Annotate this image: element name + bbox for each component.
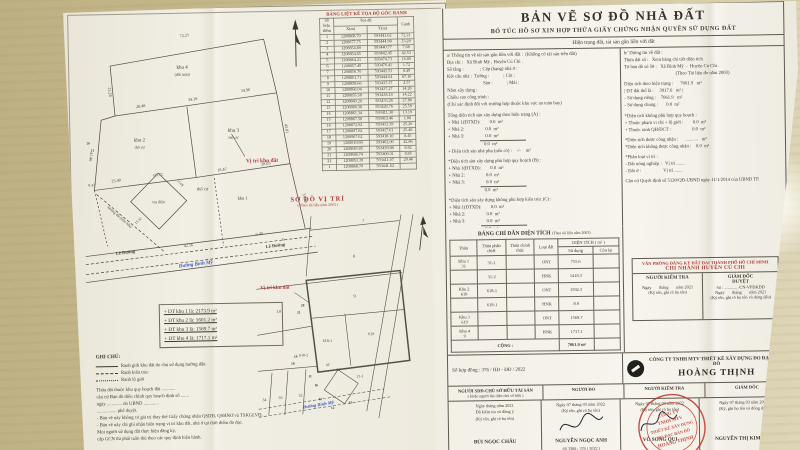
plot-label-khu4-sub: (đất màu) [174, 72, 190, 77]
dt-col-phanchiet: Thửa phân chiết [477, 239, 506, 255]
form-line: *Diện tích không được công nhận : 0.0 m² [625, 142, 782, 151]
form-line: + Thuộc ranh QH/ĐCT : 0.0 m² [625, 125, 782, 134]
detail-table-title-note: (Theo tài liệu năm 2003) [552, 231, 591, 236]
detail-table-block: BẢNG CHỈ DẪN DIỆN TÍCH (Theo tài liệu nă… [446, 226, 625, 354]
form-line: (Chỉ xác định đối với trường hợp thuộc k… [447, 100, 617, 109]
company-block: CÔNG TY TNHH MTV THIẾT KẾ XÂY DỰNG ĐO ĐẠ… [623, 351, 788, 383]
map-point-label: 15 [319, 397, 323, 401]
dim-label: 42.16 [183, 242, 193, 248]
dim-label: 72.21 [179, 32, 189, 38]
signature-header-surveyor: NGƯỜI ĐO [543, 384, 624, 399]
dim-label: 17.08 [176, 179, 185, 188]
map-location-label: Vị trí khu đất [260, 286, 290, 292]
dim-label: 8.47 [88, 183, 95, 187]
map-point-label: 18 [291, 362, 295, 366]
signature-cell-director: Ngày 07 tháng 03 năm 2022 (Ký, ghi họ tê… [700, 397, 790, 450]
registry-office-box: VĂN PHÒNG ĐĂNG KÝ ĐẤT ĐAI THÀNH PHỐ HỒ C… [632, 256, 780, 321]
point-label: 20 [87, 141, 91, 145]
coord-col-edge: Cạnh [398, 17, 414, 34]
registry-director-cell: GIÁM ĐỐC DUYỆT Số : ............ /CN-VPĐ… [703, 272, 778, 319]
form-line: - Sử dụng chung : 0.0 m² [624, 101, 781, 110]
company-row: Số hợp đồng : 376 / HĐ - ĐĐ / 2022 CÔNG … [448, 350, 788, 386]
signature-body-row: Ngày tháng năm 2021 Đã kiểm tra và đồng … [449, 396, 790, 450]
registry-checker-cell: NGƯỜI KIỂM TRA Ngày tháng năm 2021 (Ký t… [633, 273, 704, 320]
map-point-label: 20 [301, 303, 305, 307]
survey-form: BẢN VẼ SƠ ĐỒ NHÀ ĐẤT BỔ TÚC HỒ SƠ XIN HỢ… [442, 1, 790, 450]
tables-row: BẢNG CHỈ DẪN DIỆN TÍCH (Theo tài liệu nă… [446, 224, 788, 355]
sig-doc-number: Số TBĐ : 376 ( 2022 ) [542, 445, 620, 450]
plot-label-khu4: khu 4 [176, 66, 188, 71]
signature-squiggle [556, 412, 606, 437]
legend-line-sample [96, 366, 118, 367]
map-parcel-label: 6 [282, 237, 284, 242]
notes-block: GHI CHÚ: Ranh giới khu đất do chủ sử dụn… [96, 351, 286, 444]
north-arrow-icon [287, 18, 304, 70]
dim-label: 34.18 [188, 96, 198, 102]
signature-header-owner: NGƯỜI SDĐ-CHỦ SỞ HỮU TÀI SẢN ( Hoặc ngườ… [448, 385, 543, 400]
sig-note: (Ký, ghi họ tên và đóng dấu) [700, 405, 788, 413]
total-label: CỘNG : [451, 339, 559, 353]
right-sheet: BẢN VẼ SƠ ĐỒ NHÀ ĐẤT BỔ TÚC HỒ SƠ XIN HỢ… [426, 0, 800, 450]
dt-col-thua: Thửa [450, 240, 477, 256]
left-sheet: khu 4 (đất màu) khu 2 thổ cư khu 3 thổ c… [50, 0, 446, 450]
dim-label: 25.40 [111, 177, 121, 183]
dim-label: 34.90 [240, 87, 250, 93]
map-parcel-label: 32 [298, 392, 302, 397]
map-parcel-label: 7 [362, 218, 364, 223]
plot-label-khu3: khu 3 [228, 129, 240, 134]
form-line: + Nhà 3: 0.0 m² [448, 131, 618, 140]
sig-note: (Ký tên, ghi rõ họ tên) [449, 415, 541, 423]
dim-label: 18.47 [217, 166, 227, 172]
detail-table-title: BẢNG CHỈ DẪN DIỆN TÍCH (Theo tài liệu nă… [449, 229, 619, 237]
plot-label-khu2-sub: thổ cư [135, 144, 146, 149]
sig-name: BÙI NGỌC CHÂU [449, 438, 541, 447]
map-point-label: 13 [349, 400, 353, 404]
legend-line-sample [96, 380, 118, 381]
form-title-block: BẢN VẼ SƠ ĐỒ NHÀ ĐẤT BỔ TÚC HỒ SƠ XIN HỢ… [443, 2, 783, 40]
registry-checker-header: NGƯỜI KIỂM TRA [635, 275, 700, 281]
legend: Ranh giới khu đất do chủ sử dụng hướng d… [96, 360, 284, 385]
plot-label-khu3-sub: thổ cư [228, 135, 239, 140]
dt-col-chinhthuc: Thửa chính thức [506, 239, 535, 255]
legend-label: Ranh lộ giới [121, 376, 144, 383]
plot-label-duongdat: Đường đất (hiện hữu) [107, 205, 134, 229]
form-line: + Nhà 3: 0.0 m² [449, 217, 619, 226]
column-assets-info: a/ Thông tin về tài sản gắn liền với đất… [444, 48, 623, 228]
map-parcel-label: 9 [353, 293, 356, 298]
company-brand: HOÀNG THỊNH [649, 366, 784, 378]
form-line: - Đất ở : Vị trí ....... [625, 166, 782, 175]
registry-director-note: (Ký tên, ghi rõ họ tên và đóng dấu) [705, 294, 776, 300]
map-point-label: 14 [336, 368, 340, 372]
registry-cell: VĂN PHÒNG ĐĂNG KÝ ĐẤT ĐAI THÀNH PHỐ HỒ C… [623, 224, 788, 352]
info-columns: a/ Thông tin về tài sản gắn liền với đất… [444, 46, 786, 229]
plot-label-khu2: khu 2 [134, 138, 146, 143]
legend-line-sample [96, 373, 118, 374]
detail-table-title-text: BẢNG CHỈ DẪN DIỆN TÍCH [478, 230, 551, 237]
road-label-le-duong-1: Lề Đường [116, 249, 137, 256]
company-logo-icon [627, 360, 644, 377]
area-summary-line: + DT khu 4 là: 1717.1 m² [164, 333, 278, 344]
form-line: + Nhà 3: 0.0 m² [448, 177, 618, 186]
form-line: 0.0 m² [481, 186, 527, 195]
signature-header-director: GIÁM ĐỐC [705, 382, 788, 397]
photo-of-land-survey-documents: khu 4 (đất màu) khu 2 thổ cư khu 3 thổ c… [0, 0, 800, 450]
map-point-label: 21 [297, 310, 301, 314]
dim-label: 43.81 [284, 123, 291, 133]
map-north-arrow-icon [419, 216, 429, 250]
column-land-info: b/ Thông tin về đất : Thửa đất số : Xem … [621, 46, 786, 226]
dim-label: 15.32 [134, 216, 143, 225]
map-parcel-label: 619 [368, 331, 374, 336]
form-line: + Diện tích sàn nhà phụ (nếu có) : -/- m… [448, 146, 618, 155]
total-value: 7061.9 m² [559, 338, 594, 350]
map-parcel-label: 618-1 [323, 338, 332, 343]
dt-col-loaidat: Loại đất [534, 239, 558, 255]
sig-name: NGUYỄN THỊ KIM HUỆ [700, 435, 788, 444]
company-stamp: CÔNG TY TNHH MTV THIẾT KẾ XÂY DỰNG ĐO ĐẠ… [634, 390, 709, 450]
column-b-lines: Thửa đất số : Xem bảng chi tiết diện tíc… [624, 55, 783, 185]
right-sheet-content: BẢN VẼ SƠ ĐỒ NHÀ ĐẤT BỔ TÚC HỒ SƠ XIN HỢ… [428, 0, 796, 450]
plot-label-thocu: thổ cư [197, 186, 209, 191]
registry-checker-note: (Ký tên, ghi rõ họ tên) [635, 289, 700, 295]
signature-cell-surveyor: Ngày 07 tháng 03 năm 2022 (Ký tên, ghi r… [542, 399, 622, 450]
form-line: Căn cứ Quyết định số 5120/QĐ-UBND ngày 1… [625, 176, 782, 185]
map-parcel-label: 8 [353, 253, 355, 258]
area-summary-box: + DT khu 1 là: 2173.9 m²+ DT khu 2 là: 1… [159, 302, 284, 349]
coordinate-table: Số hiệu điểm Tọa độ Cạnh X(m) Y(m) [319, 16, 417, 171]
map-point-label: 16 [315, 383, 319, 387]
detail-table: Thửa Thửa phân chiết Thửa chính thức Loạ… [449, 237, 621, 352]
dim-label: 41.46 [88, 152, 94, 162]
map-parcel-label: 21-1 [357, 374, 364, 378]
dim-label: 28.48 [136, 103, 146, 109]
map-point-label: 11 [308, 374, 312, 378]
form-title: BẢN VẼ SƠ ĐỒ NHÀ ĐẤT [443, 6, 783, 27]
notes-lines: Thửa đất thuộc khu quy hoạch đất .......… [96, 384, 285, 444]
contract-number: Số hợp đồng : 376 / HĐ - ĐĐ / 2022 [448, 353, 623, 385]
point-label: 21 [91, 148, 95, 152]
map-parcel-label: 618-2 [299, 353, 308, 357]
column-a-lines: Địa chỉ : Xã Bình Mỹ , Huyện Củ Chi .Số … [447, 58, 619, 229]
plot-location-label: Vị trí khu đất [246, 157, 279, 165]
coordinate-table-block: BẢNG LIỆT KÊ TỌA ĐỘ GÓC RANH Số hiệu điể… [319, 10, 417, 171]
detail-table-total-row: CỘNG : 7061.9 m² [451, 338, 620, 352]
map-point-label: 17 [326, 363, 330, 367]
dim-label: 23.28 [107, 87, 113, 97]
plot-label-trudien: trụ điện [152, 199, 164, 204]
map-point-label: 12 [331, 406, 335, 410]
left-sheet-frame: khu 4 (đất màu) khu 2 thổ cư khu 3 thổ c… [62, 3, 455, 450]
signature-cell-owner: Ngày tháng năm 2021 Đã kiểm tra và đồng … [449, 400, 543, 450]
map-point-label: 19 [294, 355, 298, 359]
coord-col-point: Số hiệu điểm [320, 18, 334, 35]
